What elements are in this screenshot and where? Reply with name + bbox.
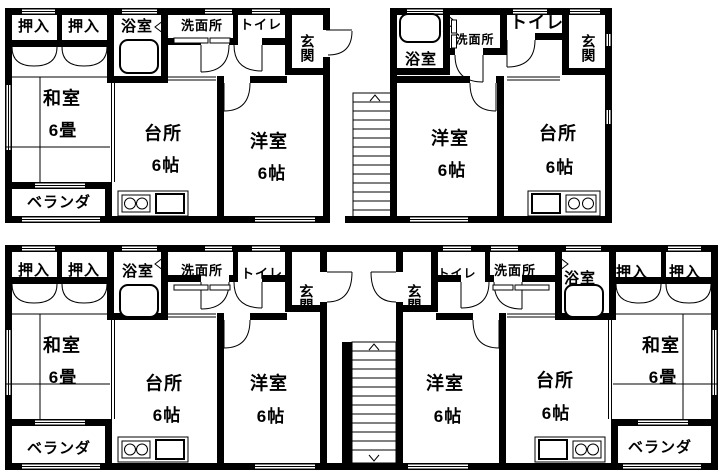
room-label-toilet-c: トイレ	[241, 267, 283, 281]
room-label-closet-c2: 押入	[68, 263, 100, 279]
room-label-closet-d1: 押入	[616, 265, 648, 281]
room-label-japanese-room-d: 和室	[642, 337, 680, 356]
kitchen-counter-d	[535, 437, 605, 462]
washbasin-icon-c	[174, 285, 230, 290]
room-size-kitchen-b: 6帖	[546, 159, 574, 177]
room-label-washroom-a: 洗面所	[181, 19, 223, 33]
room-label-bathroom-c: 浴室	[122, 264, 154, 280]
floor-plan-drawing	[0, 0, 723, 476]
room-size-japanese-room-d: 6畳	[649, 369, 677, 387]
sink-icon	[156, 440, 184, 459]
room-label-entrance-b: 玄関	[581, 34, 596, 62]
sink-icon	[156, 194, 184, 213]
kitchen-counter-a	[118, 191, 188, 216]
room-label-japanese-room-a: 和室	[43, 90, 81, 109]
bathtub-icon-c	[120, 285, 158, 317]
room-label-bathroom-b: 浴室	[405, 52, 437, 68]
room-label-western-room-b: 洋室	[431, 130, 469, 149]
stove-burner-icon	[576, 444, 587, 455]
room-label-kitchen-c: 台所	[145, 375, 183, 394]
room-label-western-room-c: 洋室	[250, 375, 288, 394]
room-label-bathroom-a: 浴室	[121, 19, 153, 35]
stove-burner-icon	[588, 444, 599, 455]
washbasin-icon-a	[174, 38, 230, 43]
room-size-kitchen-d: 6帖	[542, 405, 570, 423]
stove-burner-icon	[125, 198, 136, 209]
stove-burner-icon	[569, 198, 580, 209]
room-label-closet-c1: 押入	[18, 263, 50, 279]
bathtub-icon-a	[120, 40, 158, 73]
room-label-closet-d2: 押入	[669, 265, 701, 281]
room-label-veranda-c: ベランダ	[27, 441, 91, 457]
stove-burner-icon	[125, 444, 136, 455]
room-label-washroom-d: 洗面所	[494, 264, 536, 278]
stove-burner-icon	[583, 198, 594, 209]
room-label-toilet-b: トイレ	[510, 14, 564, 32]
room-label-entrance-a: 玄関	[300, 34, 315, 62]
room-size-western-room-c: 6帖	[257, 408, 285, 426]
room-label-closet-a1: 押入	[18, 19, 50, 35]
room-label-kitchen-b: 台所	[539, 125, 577, 144]
bathtub-icon-d	[565, 285, 603, 317]
kitchen-counter-c	[118, 437, 188, 462]
room-label-veranda-a: ベランダ	[27, 195, 91, 211]
room-size-western-room-a: 6帖	[258, 165, 286, 183]
room-size-western-room-b: 6帖	[438, 162, 466, 180]
room-label-japanese-room-c: 和室	[43, 337, 81, 356]
sink-icon	[532, 194, 560, 213]
room-label-entrance-d: 玄関	[407, 284, 422, 312]
room-size-kitchen-c: 6帖	[153, 407, 181, 425]
floor-plan-page: 押入 押入 浴室 洗面所 トイレ 玄関 和室 6畳 台所 6帖 洋室 6帖 ベラ…	[0, 0, 723, 476]
washbasin-icon-d	[493, 285, 549, 290]
kitchen-counter-b	[528, 191, 600, 216]
room-label-toilet-d: トイレ	[437, 268, 476, 281]
room-label-western-room-a: 洋室	[250, 133, 288, 152]
room-label-kitchen-d: 台所	[536, 372, 574, 391]
room-label-entrance-c: 玄関	[299, 284, 314, 312]
stove-burner-icon	[137, 444, 148, 455]
room-size-japanese-room-c: 6畳	[49, 369, 77, 387]
room-label-washroom-b: 洗面所	[455, 34, 494, 47]
room-label-western-room-d: 洋室	[426, 375, 464, 394]
room-size-japanese-room-a: 6畳	[49, 122, 77, 140]
room-size-western-room-d: 6帖	[434, 408, 462, 426]
sink-icon	[539, 440, 567, 459]
room-label-closet-a2: 押入	[68, 19, 100, 35]
room-label-washroom-c: 洗面所	[181, 264, 223, 278]
room-label-kitchen-a: 台所	[144, 125, 182, 144]
bathtub-icon-b	[400, 14, 440, 42]
room-label-bathroom-d: 浴室	[564, 271, 596, 287]
room-size-kitchen-a: 6帖	[152, 157, 180, 175]
room-label-veranda-d: ベランダ	[628, 440, 692, 456]
stove-burner-icon	[137, 198, 148, 209]
room-label-toilet-a: トイレ	[240, 18, 282, 32]
